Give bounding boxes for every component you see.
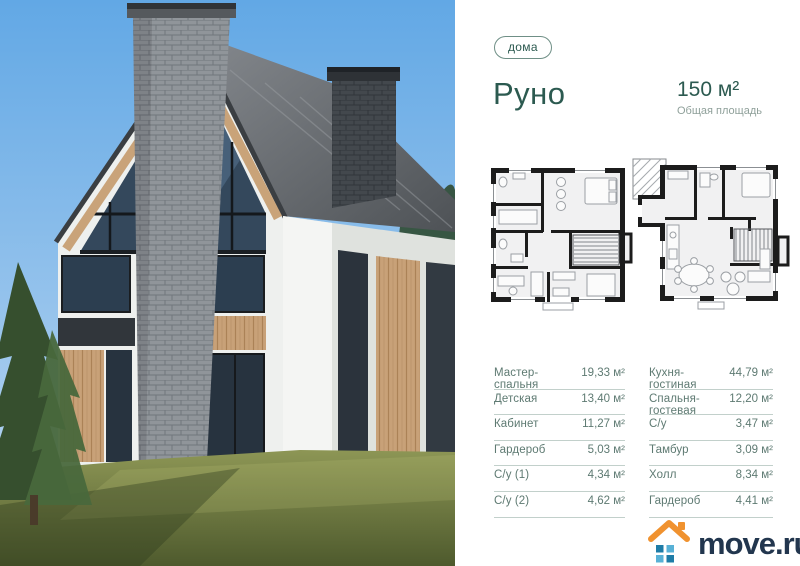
window-lower-left xyxy=(106,350,132,462)
move-ru-logo[interactable]: move.ru xyxy=(647,519,800,563)
room-label: Гардероб xyxy=(494,444,545,456)
room-label: Кухня-гостиная xyxy=(649,367,729,391)
window-upper-left xyxy=(62,256,130,312)
room-area: 4,41 м² xyxy=(736,495,773,507)
table-row: С/у (2) 4,62 м² xyxy=(494,492,625,518)
room-label: Тамбур xyxy=(649,444,689,456)
listing-page: дома Руно 150 м² Общая площадь xyxy=(0,0,800,566)
room-area: 4,34 м² xyxy=(588,469,625,481)
table-row: Гардероб 4,41 м² xyxy=(649,492,773,518)
table-row: Спальня-гостевая 12,20 м² xyxy=(649,390,773,416)
dark-band xyxy=(58,318,135,346)
room-table-left: Мастер-спальня 19,33 м² Детская 13,40 м²… xyxy=(494,364,625,518)
room-label: Кабинет xyxy=(494,418,538,430)
house-photo xyxy=(0,0,455,566)
room-area: 3,47 м² xyxy=(736,418,773,430)
rear-chimney xyxy=(332,80,396,208)
table-row: Гардероб 5,03 м² xyxy=(494,441,625,467)
wood-panel-right xyxy=(206,316,266,350)
room-area: 4,62 м² xyxy=(588,495,625,507)
room-label: Детская xyxy=(494,393,537,405)
floor-plan-upper-drawing xyxy=(487,160,633,314)
room-area: 13,40 м² xyxy=(581,393,625,405)
room-table-right: Кухня-гостиная 44,79 м² Спальня-гостевая… xyxy=(649,364,773,518)
room-label: С/у (2) xyxy=(494,495,529,507)
page-title: Руно xyxy=(493,76,566,112)
table-row: Тамбур 3,09 м² xyxy=(649,441,773,467)
room-label: Мастер-спальня xyxy=(494,367,581,391)
total-area: 150 м² Общая площадь xyxy=(677,78,762,117)
room-label: С/у xyxy=(649,418,667,430)
house-icon xyxy=(647,519,692,563)
room-area: 11,27 м² xyxy=(582,418,625,430)
room-area: 8,34 м² xyxy=(736,469,773,481)
table-row: Кухня-гостиная 44,79 м² xyxy=(649,364,773,390)
floor-plan-ground-drawing xyxy=(630,153,792,319)
room-label: Гардероб xyxy=(649,495,700,507)
table-row: Мастер-спальня 19,33 м² xyxy=(494,364,625,390)
floor-plan-ground xyxy=(630,153,792,324)
room-label: Холл xyxy=(649,469,677,481)
room-label: С/у (1) xyxy=(494,469,529,481)
room-area: 19,33 м² xyxy=(581,367,625,379)
table-row: Детская 13,40 м² xyxy=(494,390,625,416)
room-label: Спальня-гостевая xyxy=(649,393,729,417)
total-area-label: Общая площадь xyxy=(677,105,762,117)
room-area: 44,79 м² xyxy=(729,367,773,379)
table-row: С/у 3,47 м² xyxy=(649,415,773,441)
logo-wordmark: move.ru xyxy=(698,528,800,559)
table-row: С/у (1) 4,34 м² xyxy=(494,466,625,492)
floor-plan-upper xyxy=(487,160,633,319)
room-area: 12,20 м² xyxy=(729,393,773,405)
room-area: 3,09 м² xyxy=(736,444,773,456)
category-chip[interactable]: дома xyxy=(494,36,552,59)
table-row: Холл 8,34 м² xyxy=(649,466,773,492)
house-render-illustration xyxy=(0,0,455,566)
room-area: 5,03 м² xyxy=(588,444,625,456)
table-row: Кабинет 11,27 м² xyxy=(494,415,625,441)
total-area-value: 150 м² xyxy=(677,78,762,102)
